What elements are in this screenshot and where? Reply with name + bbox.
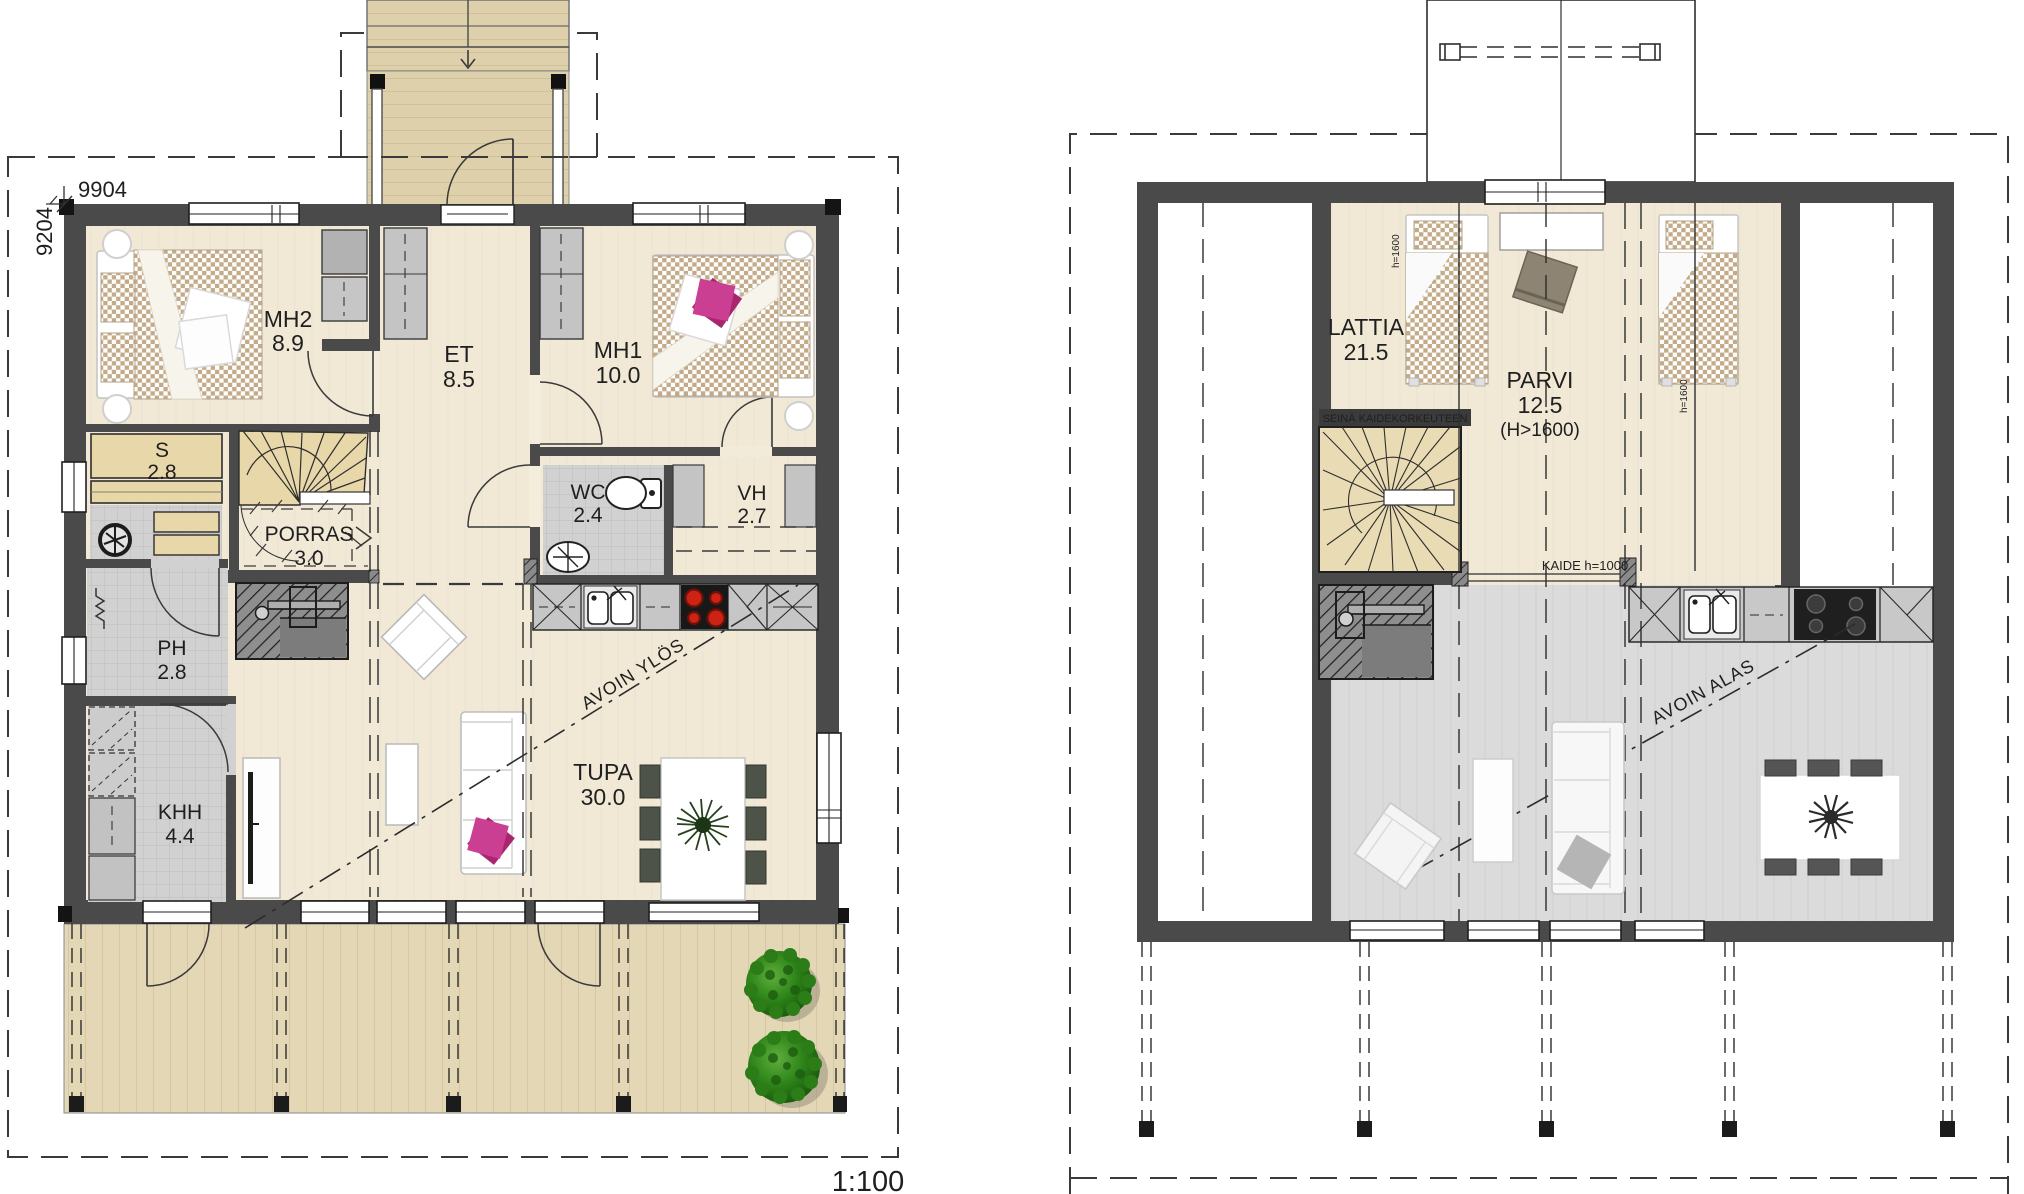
svg-text:SEINÄ KAIDEKORKEUTEEN: SEINÄ KAIDEKORKEUTEEN [1323,413,1468,425]
svg-text:PORRAS: PORRAS [265,523,354,546]
svg-text:10.0: 10.0 [596,362,641,388]
svg-text:KHH: KHH [158,801,202,824]
svg-text:8.5: 8.5 [443,366,475,392]
svg-text:S: S [155,439,169,462]
svg-text:LATTIA: LATTIA [1328,314,1405,340]
svg-text:2.8: 2.8 [157,661,186,684]
svg-text:4.4: 4.4 [165,825,195,848]
svg-text:21.5: 21.5 [1344,339,1389,365]
svg-text:WC: WC [571,481,606,504]
svg-text:TUPA: TUPA [573,759,633,785]
svg-text:3.0: 3.0 [294,547,323,570]
svg-text:30.0: 30.0 [581,784,626,810]
svg-text:1:100: 1:100 [832,1166,905,1194]
svg-text:ET: ET [444,341,473,367]
svg-text:8.9: 8.9 [272,330,304,356]
svg-text:9904: 9904 [78,177,127,202]
svg-text:12.5: 12.5 [1518,392,1563,418]
svg-text:9204: 9204 [32,207,57,256]
svg-text:PARVI: PARVI [1507,367,1574,393]
svg-text:KAIDE h=1000: KAIDE h=1000 [1542,558,1628,573]
svg-text:2.7: 2.7 [737,505,766,528]
svg-text:PH: PH [157,637,186,660]
svg-text:MH1: MH1 [594,337,643,363]
svg-text:(H>1600): (H>1600) [1500,420,1580,441]
svg-text:MH2: MH2 [264,306,313,332]
svg-text:2.8: 2.8 [147,461,176,484]
svg-text:h=1600: h=1600 [1391,234,1402,268]
svg-text:VH: VH [737,482,766,505]
svg-text:h=1600: h=1600 [1679,379,1690,413]
svg-text:2.4: 2.4 [573,504,603,527]
